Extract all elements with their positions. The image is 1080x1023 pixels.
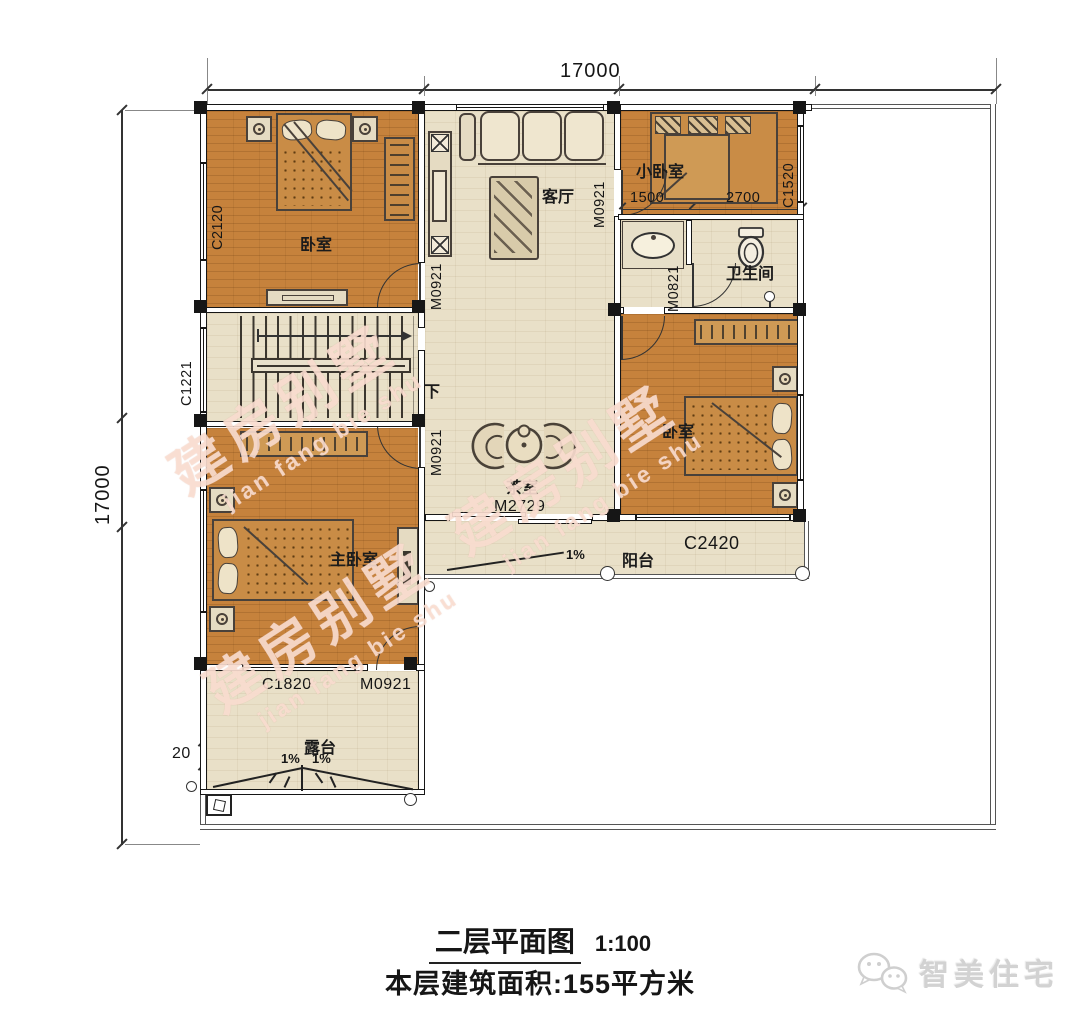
- label-stair-down: 下: [424, 378, 440, 402]
- sofa-armrest: [459, 113, 476, 161]
- dim-ext: [207, 58, 208, 104]
- label-bath: 卫生间: [726, 260, 774, 284]
- door-leaf-master: [419, 425, 421, 469]
- nightstand: [772, 366, 798, 392]
- bed-nw: [276, 113, 352, 211]
- dim-line-top: [207, 89, 997, 91]
- dim-ext: [125, 110, 200, 111]
- label-c1221: C1221: [179, 340, 195, 406]
- column: [793, 303, 806, 316]
- downspout: [186, 781, 197, 792]
- dim-height-label: 17000: [92, 425, 115, 525]
- roof-outline-bottom: [200, 824, 996, 830]
- label-living: 客厅: [542, 183, 574, 207]
- dim-line-left: [121, 110, 123, 845]
- wall-v2-1: [418, 104, 425, 263]
- label-m2729: M2729: [494, 498, 545, 516]
- terrace-slope-ridge: [301, 765, 303, 791]
- wardrobe-nw: [384, 137, 415, 221]
- wall-stair-bottom: [200, 421, 425, 427]
- tv-cabinet-master: [397, 527, 419, 605]
- balcony-column-round: [600, 566, 615, 581]
- terrace-drain-box: [206, 794, 232, 816]
- column: [412, 300, 425, 313]
- wall-terrace-bottom: [200, 789, 425, 795]
- window-living-top: [456, 104, 604, 111]
- nightstand: [209, 487, 235, 513]
- wall-master-bottom-3: [416, 664, 425, 671]
- speaker-icon: [431, 134, 449, 152]
- sofa-seat-edge: [478, 163, 606, 165]
- window-c1221: [200, 328, 207, 412]
- column: [194, 657, 207, 670]
- dim-hall-label: 1500: [630, 190, 664, 206]
- label-terrace-slope-right: 1%: [312, 751, 331, 766]
- column: [607, 509, 620, 522]
- column: [194, 300, 207, 313]
- label-m0921-master: M0921: [429, 422, 445, 476]
- wall-left-2: [200, 260, 207, 328]
- brand-block: 智美住宅: [855, 950, 1059, 994]
- window-master-left: [200, 490, 207, 612]
- plan-area: 本层建筑面积:155平方米: [385, 969, 695, 999]
- wall-left-4: [200, 612, 207, 795]
- label-m0921-terrace: M0921: [360, 676, 411, 694]
- wall-right-2: [797, 202, 804, 395]
- door-leaf-bedroom-e: [621, 316, 623, 360]
- column: [793, 509, 806, 522]
- stair-arrow-line: [258, 335, 404, 337]
- label-balcony: 阳台: [622, 547, 654, 571]
- wall-bath-bottom-2: [664, 307, 804, 314]
- room-balcony-floor: [425, 521, 805, 574]
- column: [404, 657, 417, 670]
- label-m0921-bedroom-nw: M0921: [429, 256, 445, 310]
- label-c1820: C1820: [262, 676, 312, 694]
- plan-title: 二层平面图: [429, 926, 581, 964]
- stair-arrow-start: [257, 329, 259, 342]
- roof-outline-top: [807, 104, 990, 109]
- stair-rail: [251, 358, 411, 373]
- wall-balcony-top-1: [425, 514, 450, 521]
- coffee-table: [489, 176, 539, 260]
- dim-ext: [125, 844, 200, 845]
- wall-smallbed-bottom: [618, 214, 804, 220]
- label-c2120: C2120: [210, 178, 226, 250]
- window-bedroom-e: [797, 395, 804, 480]
- label-master: 主卧室: [330, 546, 378, 570]
- window-c1820: [243, 664, 355, 671]
- column: [194, 414, 207, 427]
- window-c2120: [200, 163, 207, 260]
- label-bedroom-nw: 卧室: [300, 231, 332, 255]
- label-bedroom-small: 小卧室: [636, 158, 684, 182]
- brand-name: 智美住宅: [919, 950, 1059, 994]
- dim-width-label: 17000: [560, 60, 621, 83]
- wall-bath-partition: [686, 220, 692, 265]
- dresser-nw: [266, 289, 348, 306]
- window-c1520: [797, 126, 804, 202]
- downspout: [404, 793, 417, 806]
- wechat-icon: [855, 950, 911, 994]
- wall-v3-2: [614, 216, 621, 514]
- plan-scale: 1:100: [595, 931, 651, 956]
- column: [793, 101, 806, 114]
- door-leaf-bedroom-small: [621, 170, 623, 216]
- balcony-column-round: [795, 566, 810, 581]
- balcony-fence-bottom: [425, 574, 809, 579]
- nightstand: [352, 116, 378, 142]
- label-m0821: M0821: [666, 260, 682, 312]
- wall-stair-top: [200, 307, 425, 313]
- speaker-icon: [431, 236, 449, 254]
- downspout: [424, 581, 435, 592]
- dim-ext: [996, 58, 997, 104]
- nightstand: [246, 116, 272, 142]
- column: [608, 303, 621, 316]
- dim-line-smallbed: [622, 209, 804, 210]
- label-balcony-slope: 1%: [566, 547, 585, 562]
- tea-chairs-table-icon: [466, 417, 582, 475]
- label-terrace-slope-left: 1%: [281, 751, 300, 766]
- wall-master-bottom-2: [355, 664, 368, 671]
- label-c2420: C2420: [684, 533, 740, 554]
- sliding-door-m2729-panel-2: [518, 519, 592, 524]
- label-tea: 茶室: [506, 474, 538, 498]
- wardrobe-e: [694, 319, 800, 345]
- column: [607, 101, 620, 114]
- wall-v2-4: [418, 467, 425, 795]
- sofa-cushion: [480, 111, 520, 161]
- label-c1520: C1520: [781, 148, 797, 208]
- window-c2420: [636, 514, 790, 521]
- dim-smallbed-label: 2700: [726, 190, 760, 206]
- bed-e: [684, 396, 798, 476]
- nightstand: [209, 606, 235, 632]
- wardrobe-master: [240, 431, 368, 457]
- nightstand: [772, 482, 798, 508]
- dim-parapet-label: 20: [172, 745, 191, 763]
- column: [412, 414, 425, 427]
- roof-outline-right: [990, 104, 996, 830]
- column: [194, 101, 207, 114]
- tv-living: [432, 170, 447, 222]
- label-m0921-hall: M0921: [592, 174, 608, 228]
- label-bedroom-e: 卧室: [662, 418, 694, 442]
- sofa-cushion: [564, 111, 604, 161]
- door-leaf-bath: [692, 263, 694, 307]
- column: [412, 101, 425, 114]
- sofa-cushion: [522, 111, 562, 161]
- stair-arrow-head: [402, 331, 412, 341]
- floor-plan-canvas: 17000 17000 1500 2700 20 卧室 客厅 小卧室 卫生间 茶…: [0, 0, 1080, 1023]
